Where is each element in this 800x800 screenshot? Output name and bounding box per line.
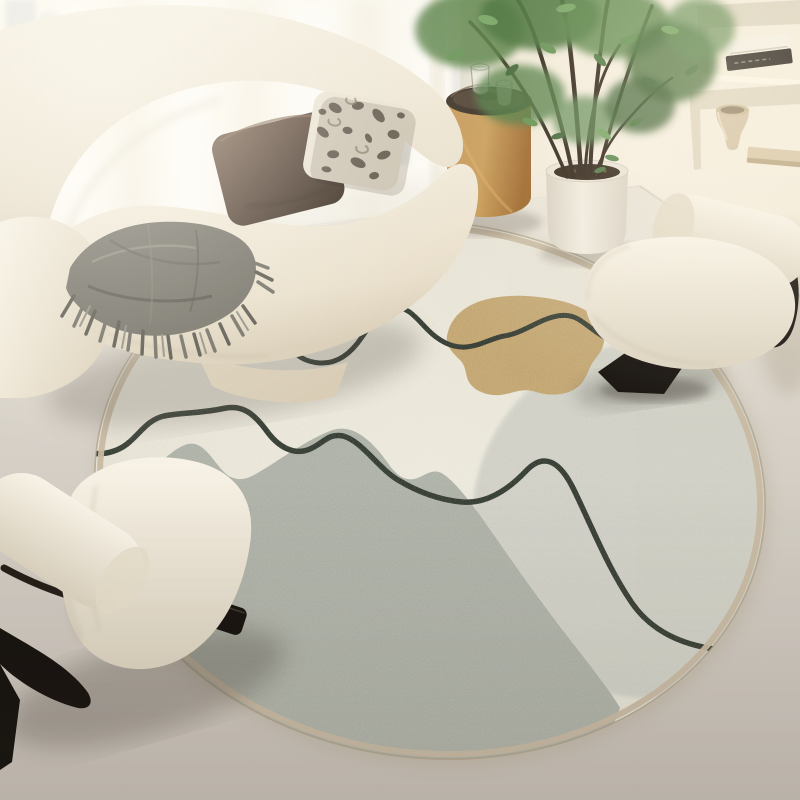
scene-canvas [0,0,800,800]
living-room-photo [0,0,800,800]
lighting [0,0,800,800]
